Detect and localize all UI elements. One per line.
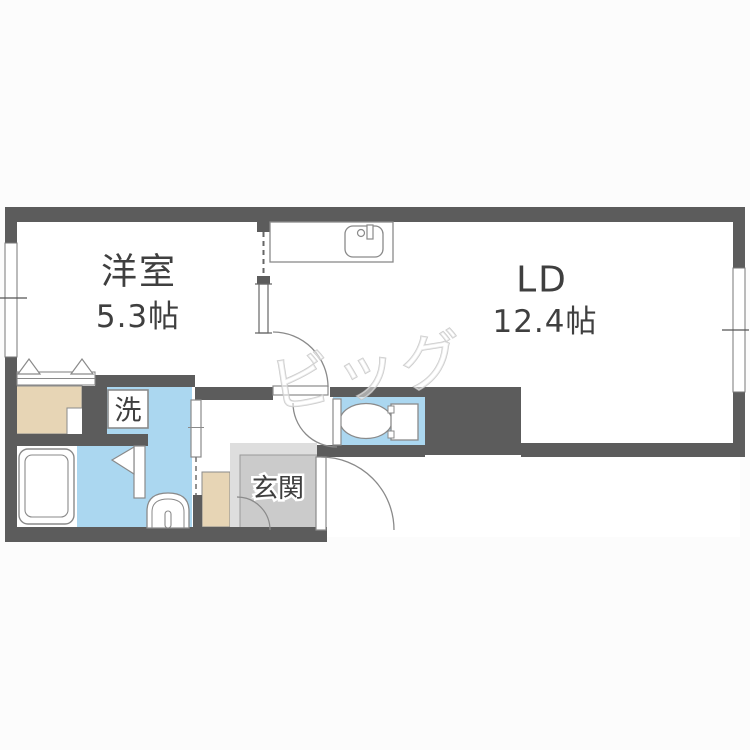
divider-thin-wall — [259, 284, 268, 333]
floor-plan: 洗 洋室 5.3帖 LD 12.4帖 玄関 ビッグ — [0, 0, 750, 750]
western-room-name: 洋室 — [101, 252, 177, 293]
laundry: 洗 — [108, 390, 148, 428]
toilet-tank-tab-top — [388, 406, 394, 413]
living-dining-name: LD — [516, 260, 568, 301]
toilet-tank-icon — [391, 404, 418, 440]
shoe-cabinet — [202, 472, 230, 527]
wall-under-closet — [5, 434, 148, 446]
entrance-label: 玄関 — [252, 474, 304, 504]
kitchen — [270, 222, 393, 262]
wall-washroom-hall-low — [193, 495, 202, 527]
bathroom — [19, 449, 74, 524]
western-room-size: 5.3帖 — [96, 299, 180, 335]
wall-bottom-ld — [521, 443, 745, 457]
kitchen-faucet-knob — [358, 230, 365, 237]
living-dining-size: 12.4帖 — [492, 304, 597, 340]
front-door-leaf — [316, 457, 326, 530]
kitchen-faucet-icon — [367, 225, 373, 239]
wall-washroom-top — [95, 375, 195, 387]
laundry-label: 洗 — [115, 396, 142, 427]
left-window-icon — [5, 243, 17, 357]
wall-bottom-left — [5, 527, 327, 542]
washbasin-faucet — [165, 511, 171, 528]
divider-stub-top — [257, 222, 270, 232]
washroom-sliding-door — [191, 400, 201, 457]
wall-top — [5, 207, 745, 222]
toilet-tank-tab-bottom — [388, 431, 394, 438]
wall-hall-top — [195, 387, 273, 400]
bathtub-inner — [25, 455, 68, 517]
divider-stub-mid — [257, 276, 270, 284]
vanity-counter — [134, 446, 145, 498]
floor-plan-canvas: 洗 洋室 5.3帖 LD 12.4帖 玄関 ビッグ — [0, 0, 750, 750]
